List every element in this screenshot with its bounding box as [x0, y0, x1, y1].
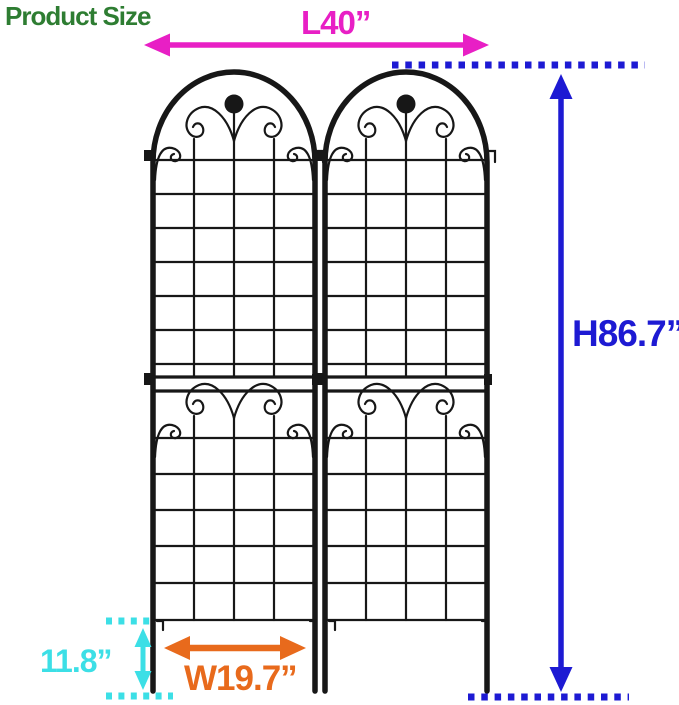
ground-clearance-arrow [135, 628, 152, 690]
trellis-panel-2 [316, 72, 495, 691]
length-dimension-label: L40” [301, 6, 370, 39]
panel-width-arrow [164, 636, 306, 660]
height-dimension-label: H86.7” [572, 315, 679, 352]
page-title: Product Size [5, 3, 150, 29]
trellis-panel-1 [144, 72, 323, 691]
product-size-diagram: Product Size L40” H86.7” 11.8” W19.7” [0, 0, 679, 705]
panel-width-label: W19.7” [184, 661, 297, 696]
ground-clearance-label: 11.8” [40, 645, 112, 677]
height-dimension-arrow [550, 74, 573, 692]
